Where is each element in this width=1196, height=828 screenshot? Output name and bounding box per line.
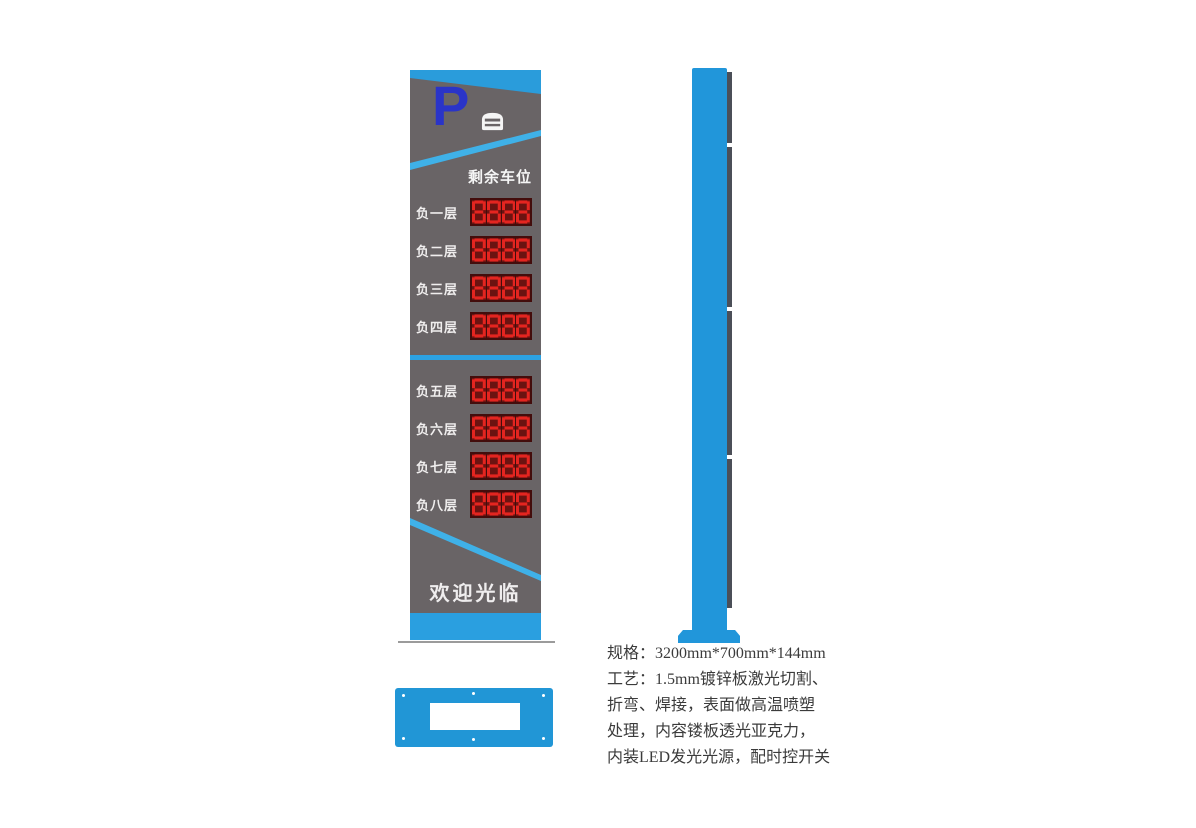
spec-line: 规格：3200mm*700mm*144mm [607,641,867,667]
led-digit [502,200,516,224]
floor-label: 负一层 [416,203,458,222]
floor-label: 负八层 [416,495,458,514]
led-digit [487,378,501,402]
floor-label: 负二层 [416,241,458,260]
led-digit [516,416,530,440]
spec-line: 折弯、焊接，表面做高温喷塑 [607,693,867,719]
spec-line: 内装LED发光光源，配时控开关 [607,745,867,771]
led-digit [487,492,501,516]
bolt-hole [542,737,545,740]
led-display [470,414,532,442]
base-plate-drawing [395,688,553,747]
led-digit [516,378,530,402]
led-digit [472,200,486,224]
led-digit [487,200,501,224]
led-display [470,490,532,518]
pylon-side-view [692,68,754,643]
led-digit [487,238,501,262]
floor-rows-upper: 负一层 负二层 负三层 负四层 [410,197,541,341]
floor-rows-lower: 负五层 负六层 负七层 负八层 [410,375,541,519]
led-display [470,274,532,302]
car-icon [478,110,507,133]
spec-line: 处理，内容镂板透光亚克力， [607,719,867,745]
spec-text-block: 规格：3200mm*700mm*144mm 工艺：1.5mm镀锌板激光切割、 折… [607,641,867,771]
led-digit [487,276,501,300]
led-digit [487,314,501,338]
led-digit [502,238,516,262]
pole-seam [727,455,732,459]
remaining-spaces-title: 剩余车位 [468,166,532,187]
floor-label: 负五层 [416,381,458,400]
bolt-hole [402,694,405,697]
pole-seam [727,307,732,311]
floor-row: 负四层 [410,311,541,341]
floor-label: 负六层 [416,419,458,438]
bolt-hole [472,692,475,695]
led-digit [472,314,486,338]
pole-body [692,68,727,630]
floor-row: 负一层 [410,197,541,227]
spec-line: 工艺：1.5mm镀锌板激光切割、 [607,667,867,693]
floor-row: 负七层 [410,451,541,481]
ground-line [398,641,555,643]
led-digit [516,200,530,224]
welcome-text: 欢迎光临 [410,577,541,606]
floor-label: 负三层 [416,279,458,298]
led-digit [502,454,516,478]
led-display [470,452,532,480]
led-digit [516,492,530,516]
led-digit [487,454,501,478]
led-digit [502,492,516,516]
section-divider [410,355,541,360]
led-display [470,376,532,404]
parking-sign-product-sheet: P 剩余车位 负一层 负二层 负三层 负四层 负五层 负六层 负七层 [0,0,1196,828]
led-digit [516,238,530,262]
pole-seam [727,143,732,147]
parking-p-logo: P [432,78,469,134]
floor-row: 负五层 [410,375,541,405]
bolt-hole [472,738,475,741]
bolt-hole [402,737,405,740]
led-digit [516,276,530,300]
led-digit [502,276,516,300]
footer-blue-band [410,613,541,640]
led-digit [516,314,530,338]
led-digit [502,314,516,338]
led-digit [502,378,516,402]
floor-label: 负七层 [416,457,458,476]
led-digit [502,416,516,440]
led-display [470,236,532,264]
led-digit [472,378,486,402]
pole-shadow-edge [727,72,732,608]
base-plate-cutout [430,703,520,730]
bolt-hole [542,694,545,697]
led-display [470,198,532,226]
led-digit [487,416,501,440]
led-digit [472,454,486,478]
led-digit [472,238,486,262]
floor-row: 负二层 [410,235,541,265]
floor-row: 负六层 [410,413,541,443]
led-digit [516,454,530,478]
led-digit [472,276,486,300]
floor-row: 负八层 [410,489,541,519]
pylon-front-view: P 剩余车位 负一层 负二层 负三层 负四层 负五层 负六层 负七层 [410,70,541,640]
led-digit [472,416,486,440]
led-display [470,312,532,340]
led-digit [472,492,486,516]
floor-row: 负三层 [410,273,541,303]
floor-label: 负四层 [416,317,458,336]
